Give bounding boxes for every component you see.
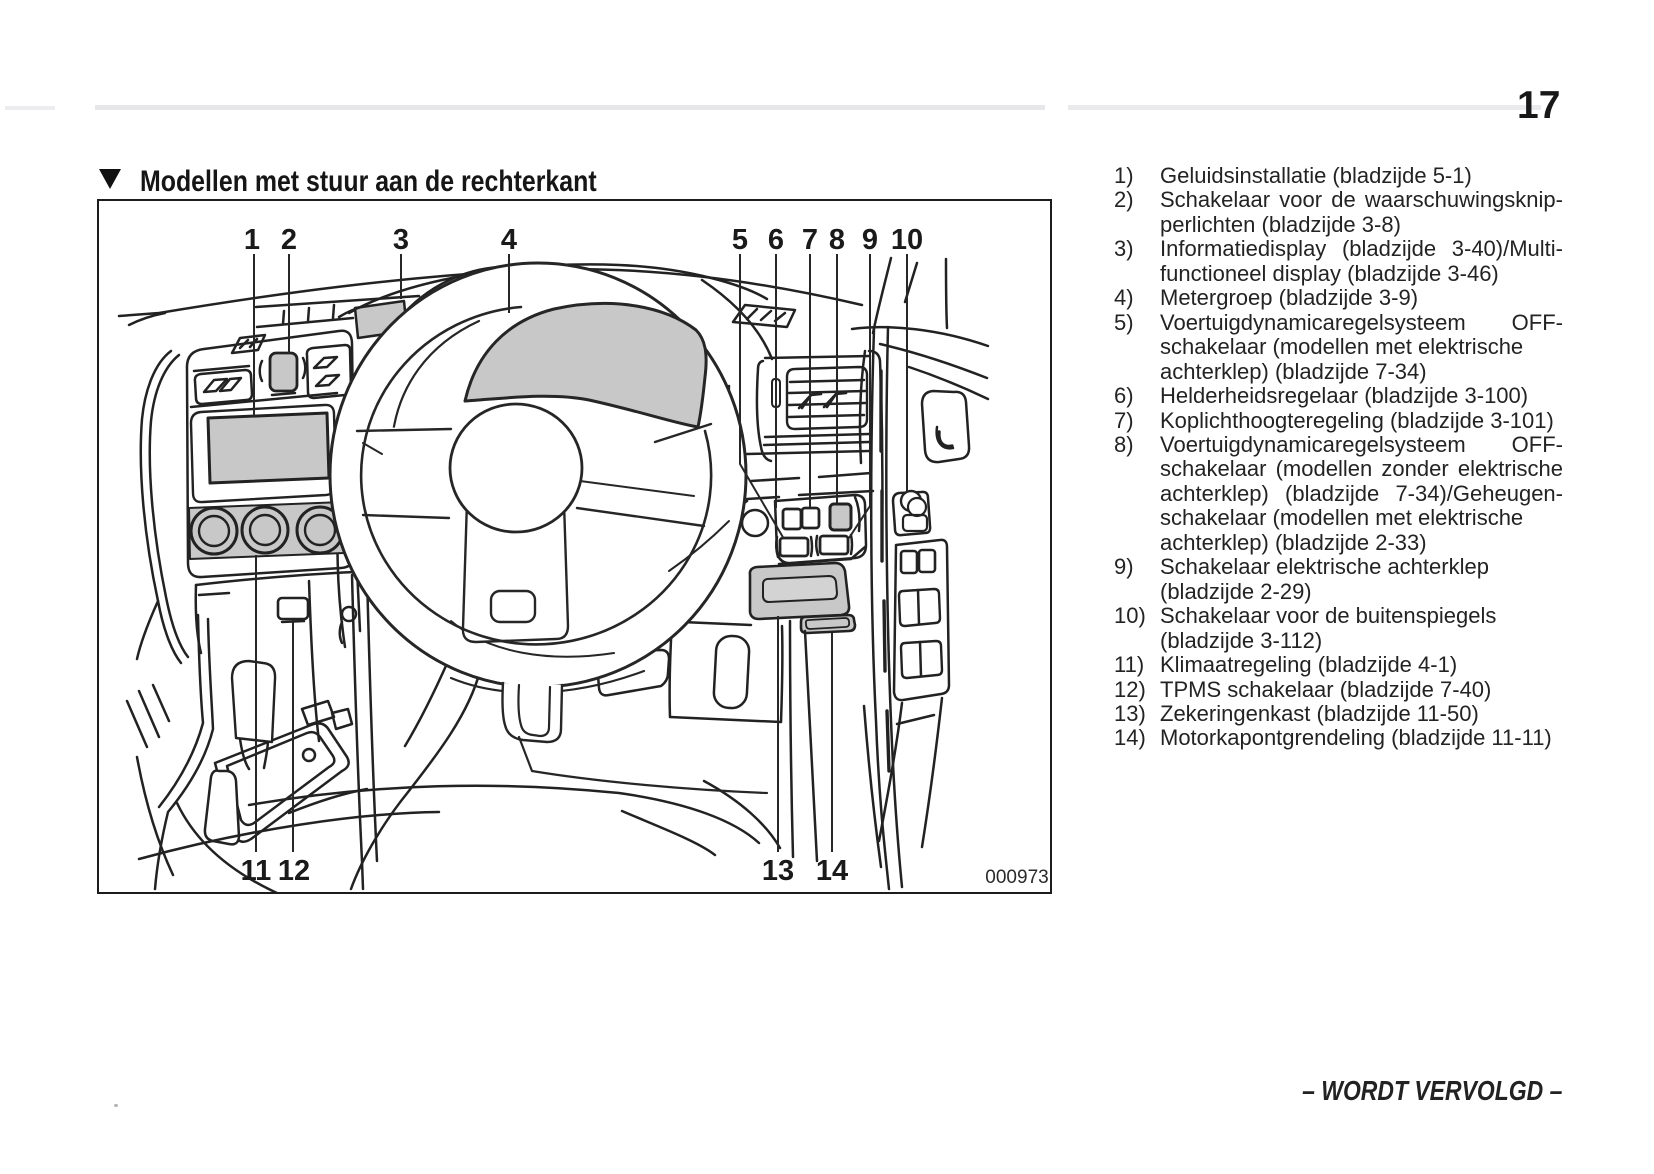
- svg-text:8: 8: [829, 224, 845, 256]
- svg-text:1: 1: [244, 224, 260, 256]
- svg-text:10: 10: [891, 224, 923, 256]
- svg-text:2: 2: [281, 224, 297, 256]
- svg-text:9: 9: [862, 224, 878, 256]
- svg-text:5: 5: [732, 224, 748, 256]
- svg-text:4: 4: [501, 224, 517, 256]
- svg-text:13: 13: [762, 855, 794, 887]
- svg-text:14: 14: [816, 855, 848, 887]
- svg-text:12: 12: [278, 855, 310, 887]
- svg-text:3: 3: [393, 224, 409, 256]
- svg-text:7: 7: [802, 224, 818, 256]
- svg-text:000973: 000973: [985, 867, 1048, 888]
- svg-text:6: 6: [768, 224, 784, 256]
- svg-text:11: 11: [241, 855, 272, 887]
